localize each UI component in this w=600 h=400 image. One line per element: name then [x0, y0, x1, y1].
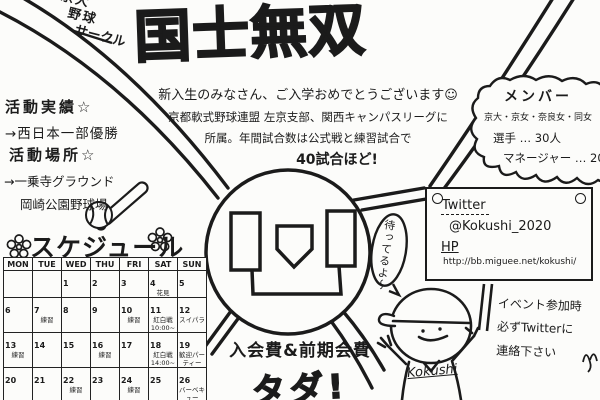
- calendar-cell: 10練習: [120, 298, 149, 333]
- poster-title: 国士無双: [133, 0, 368, 74]
- calendar-cell: 18紅白戦 14:00~: [149, 333, 178, 368]
- calendar-week-row: 67練習8910練習11紅白戦 10:00~12スイパラ: [4, 298, 207, 333]
- achievements-item: →西日本一部優勝: [5, 122, 119, 142]
- screw-hole-icon: [432, 193, 443, 204]
- greeting-block: 新入生のみなさん、ご入学おめでとうございます☺ 京都軟式野球連盟 左京支部、関西…: [146, 84, 470, 169]
- greeting-line-3: 所属。年間試合数は公式戦と練習試合で: [146, 130, 470, 146]
- calendar-cell: 24練習: [120, 368, 149, 400]
- calendar-body: 1234花見567練習8910練習11紅白戦 10:00~12スイパラ13練習1…: [4, 271, 207, 400]
- achievements-section: 活動実績☆ →西日本一部優勝: [5, 96, 119, 142]
- calendar-cell: 9: [91, 298, 120, 333]
- calendar-cell: 14: [33, 333, 62, 368]
- calendar-day-header: SUN: [178, 258, 207, 271]
- calendar-cell: 8: [62, 298, 91, 333]
- flower-icon-left: [7, 235, 30, 258]
- calendar-cell: 2: [91, 271, 120, 298]
- location-item-1: →一乗寺グラウンド: [4, 171, 114, 190]
- greeting-line-2: 京都軟式野球連盟 左京支部、関西キャンパスリーグに: [146, 109, 470, 125]
- calendar-day-header: MON: [4, 258, 33, 271]
- sign-post: [479, 284, 492, 331]
- contact-note-line-3: 連絡下さい: [496, 339, 581, 365]
- mascot-figure: [378, 289, 478, 400]
- calendar-cell: 23: [91, 368, 120, 400]
- calendar-cell: 12スイパラ: [178, 298, 207, 333]
- fee-free-text: タダ!: [215, 358, 385, 400]
- calendar-day-header: THU: [91, 258, 120, 271]
- calendar-week-row: 13練習141516練習1718紅白戦 14:00~19歓迎パーティー: [4, 333, 207, 368]
- calendar-cell: 22練習: [62, 368, 91, 400]
- calendar-cell: 25: [149, 368, 178, 400]
- calendar-cell: 20: [4, 368, 33, 400]
- greeting-line-1: 新入生のみなさん、ご入学おめでとうございます☺: [146, 84, 470, 103]
- members-managers-count: マネージャー … 20人: [479, 150, 597, 166]
- calendar-cell: 13練習: [4, 333, 33, 368]
- calendar-cell: 19歓迎パーティー: [178, 333, 207, 368]
- calendar-cell: 26バーベキュー: [178, 368, 207, 400]
- schedule-calendar: MONTUEWEDTHUFRISATSUN 1234花見567練習8910練習1…: [3, 257, 207, 400]
- calendar-cell: 5: [178, 271, 207, 298]
- members-heading: メンバー: [479, 86, 597, 106]
- twitter-label: Twitter: [441, 198, 489, 215]
- calendar-header-row: MONTUEWEDTHUFRISATSUN: [4, 258, 207, 271]
- calendar-cell: 4花見: [149, 271, 178, 298]
- calendar-cell: 21: [33, 368, 62, 400]
- calendar-day-header: TUE: [33, 258, 62, 271]
- flyer-poster: 京大 野球 サークル 国士無双 新入生のみなさん、ご入学おめでとうございます☺ …: [0, 0, 600, 400]
- screw-hole-icon: [575, 193, 586, 204]
- calendar-cell: 1: [62, 271, 91, 298]
- infield-drawing: [206, 170, 370, 334]
- calendar-cell: 17: [120, 333, 149, 368]
- members-schools: 京大・京女・奈良女・同女: [479, 110, 597, 123]
- calendar-week-row: 1234花見5: [4, 271, 207, 298]
- calendar-cell: 7練習: [33, 298, 62, 333]
- signboard: Twitter @Kokushi_2020 HP http://bb.migue…: [425, 187, 593, 281]
- fee-announcement: 入会費&前期会費 タダ!: [216, 336, 384, 400]
- calendar-cell: 16練習: [91, 333, 120, 368]
- calendar-day-header: SAT: [149, 258, 178, 271]
- fee-line: 入会費&前期会費: [216, 336, 384, 361]
- members-section: メンバー 京大・京女・奈良女・同女 選手 … 30人 マネージャー … 20人: [479, 86, 597, 166]
- calendar-day-header: FRI: [120, 258, 149, 271]
- mascot-eye-left: [421, 329, 424, 332]
- twitter-handle: @Kokushi_2020: [449, 219, 591, 234]
- locations-section: 活動場所☆ →一乗寺グラウンド 岡崎公園野球場: [4, 144, 114, 213]
- homepage-url: http://bb.miguee.net/kokushi/: [443, 257, 591, 267]
- calendar-cell: 11紅白戦 10:00~: [149, 298, 178, 333]
- calendar-cell: 15: [62, 333, 91, 368]
- greeting-line-4: 40試合ほど!: [146, 149, 470, 169]
- members-players-count: 選手 … 30人: [479, 130, 597, 146]
- calendar-week-row: 202122練習2324練習2526バーベキュー: [4, 368, 207, 400]
- locations-heading: 活動場所☆: [9, 144, 114, 165]
- calendar-cell: [4, 271, 33, 298]
- contact-note: イベント参加時 必ずTwitterに 連絡下さい: [496, 293, 582, 366]
- contact-note-line-1: イベント参加時: [497, 293, 582, 319]
- calendar-day-header: WED: [62, 258, 91, 271]
- calendar-cell: [33, 271, 62, 298]
- hp-label: HP: [441, 240, 459, 255]
- praying-hands-icon: [583, 354, 597, 372]
- calendar-cell: 3: [120, 271, 149, 298]
- contact-note-line-2: 必ずTwitterに: [497, 316, 582, 342]
- location-item-2: 岡崎公園野球場: [20, 194, 114, 213]
- calendar-cell: 6: [4, 298, 33, 333]
- achievements-heading: 活動実績☆: [5, 96, 119, 117]
- mascot-eye-right: [438, 327, 441, 330]
